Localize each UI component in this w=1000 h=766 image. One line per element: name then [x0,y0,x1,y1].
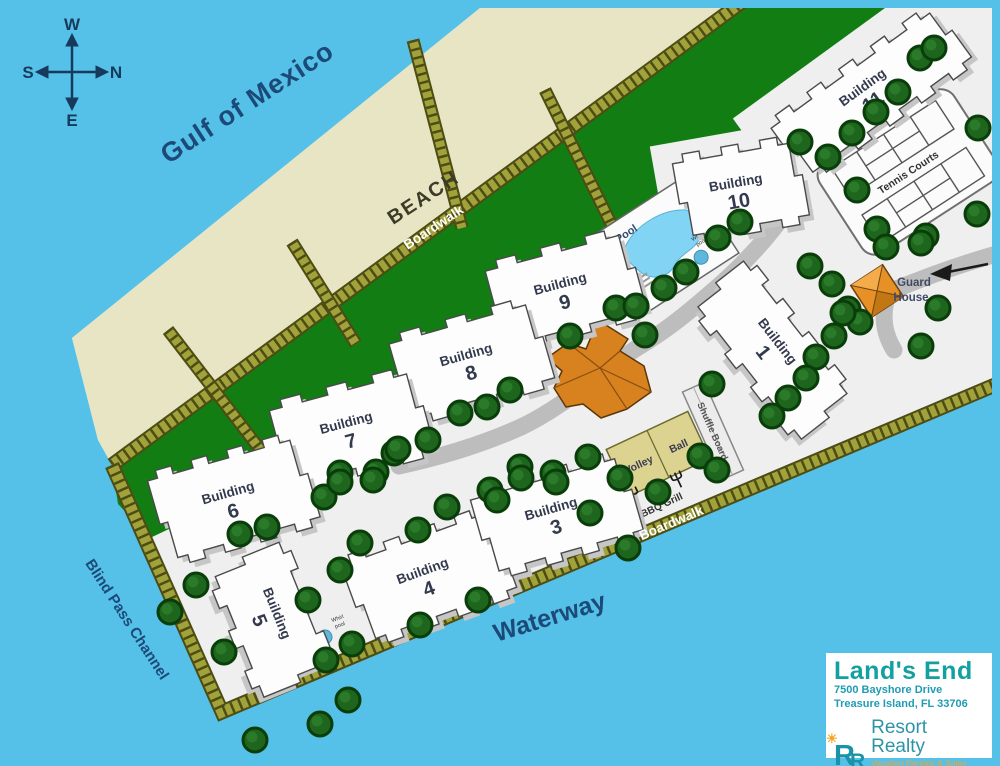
tree [728,210,752,234]
tree [308,712,332,736]
tree [576,445,600,469]
compass-south: S [22,63,33,82]
tree [816,145,840,169]
tree [820,272,844,296]
tree [864,100,888,124]
resort-name: Land's End [834,658,984,684]
tree [798,254,822,278]
sun-icon: ☀ [826,734,838,744]
tree [909,231,933,255]
resort-address-line1: 7500 Bayshore Drive [834,684,984,698]
guard-house-label-line2: House [893,292,928,304]
tree [624,294,648,318]
tree [228,522,252,546]
tree [475,395,499,419]
tree [616,536,640,560]
tree [578,501,602,525]
compass-east: E [66,111,77,130]
tree [886,80,910,104]
tree [336,688,360,712]
tree [340,632,364,656]
map-canvas: Pool Whirl pool Tennis Courts [0,0,1000,766]
tree [386,437,410,461]
tree [633,323,657,347]
compass-west: W [64,15,81,34]
tree [184,573,208,597]
tree [966,116,990,140]
tree [498,378,522,402]
guard-house-label-line1: Guard [897,277,931,289]
tree [700,372,724,396]
tree [158,600,182,624]
tree [212,640,236,664]
tree [558,324,582,348]
brand-row: ☀RR Resort Realty Vacation Rentals & Sal… [834,718,984,766]
tree [416,428,440,452]
tree [328,470,352,494]
tree [705,458,729,482]
tree [760,404,784,428]
tree [874,235,898,259]
tree [646,480,670,504]
tree [965,202,989,226]
tree [466,588,490,612]
tree [845,178,869,202]
tree [361,468,385,492]
tree [435,495,459,519]
tree [831,301,855,325]
tree [485,488,509,512]
tree [448,401,472,425]
tree [296,588,320,612]
tree [909,334,933,358]
resort-site-map: Pool Whirl pool Tennis Courts [0,0,1000,766]
brand-tagline: Vacation Rentals & Sales [871,758,984,766]
brand-name: Resort Realty [871,718,984,756]
resort-realty-logo: ☀RR [834,745,865,766]
compass-north: N [110,63,122,82]
tree [674,260,698,284]
tree [926,296,950,320]
tree [408,613,432,637]
tree [788,130,812,154]
tree [794,366,818,390]
tree [255,515,279,539]
resort-info-card: Land's End 7500 Bayshore Drive Treasure … [826,653,992,758]
tree [922,36,946,60]
tree [608,466,632,490]
monogram-r2: R [850,754,865,766]
tree [328,558,352,582]
tree [243,728,267,752]
tree [314,648,338,672]
tree [509,466,533,490]
tree [406,518,430,542]
tree [652,276,676,300]
tree [840,121,864,145]
tree [544,470,568,494]
resort-address-line2: Treasure Island, FL 33706 [834,698,984,712]
tree [348,531,372,555]
tree [706,226,730,250]
tree [822,324,846,348]
